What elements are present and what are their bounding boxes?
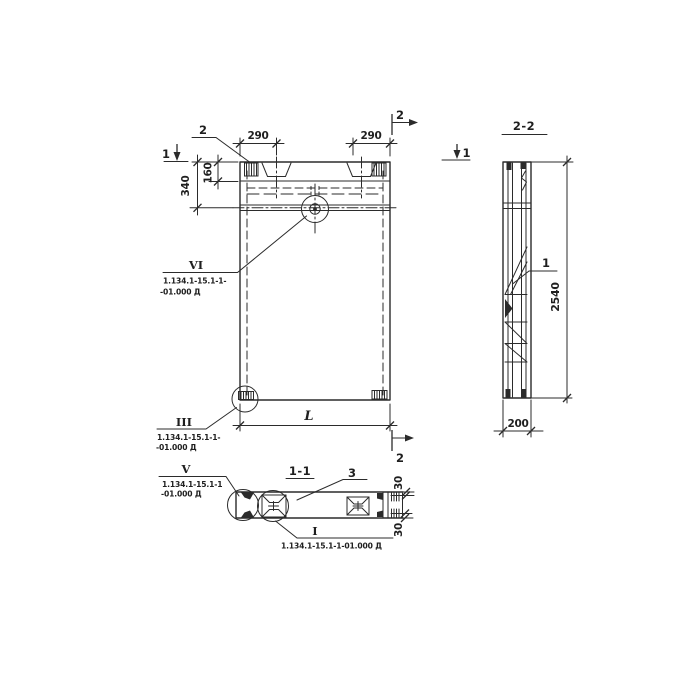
dim-30-top: 30 (391, 476, 414, 500)
dim-290-left: 290 (233, 130, 284, 156)
embed-plate-bottom-right (372, 391, 387, 400)
keyway-pocket-2 (347, 497, 369, 515)
callout-i: I 1.134.1-15.1-1-01.000 Д (276, 521, 394, 551)
embed-plate-top-right (372, 163, 386, 176)
section-mark-1-left-label: 1 (162, 147, 170, 161)
dim-2540: 2540 (549, 156, 571, 403)
dim-290-right: 290 (346, 130, 397, 156)
section-mark-2-top-label: 2 (396, 108, 404, 122)
lifting-slot-left (262, 157, 291, 198)
section-mark-1-left: 1 (162, 144, 188, 162)
callout-vi-label: VI (188, 258, 203, 272)
section-mark-2-bottom-label: 2 (396, 451, 404, 465)
drawing-sheet: 290 290 340 160 L (0, 0, 700, 700)
keyway-pocket-1 (262, 495, 286, 517)
technical-drawing-canvas: 290 290 340 160 L (0, 0, 700, 700)
callout-vi: VI 1.134.1-15.1-1- -01.000 Д (160, 216, 307, 297)
callout-i-label: I (312, 524, 317, 538)
callout-vi-line2: -01.000 Д (160, 288, 201, 297)
part-3-label: 3 (348, 466, 356, 480)
callout-v: V 1.134.1-15.1-1 -01.000 Д (159, 462, 239, 499)
dim-30-bottom: 30 (391, 510, 413, 538)
dim-30-top-label: 30 (393, 476, 405, 490)
embed-plate-top-left (245, 163, 259, 176)
dim-L-label: L (303, 409, 313, 424)
callout-vi-line1: 1.134.1-15.1-1- (163, 277, 226, 286)
callout-v-line1: 1.134.1-15.1-1 (162, 480, 222, 489)
section-1-1-view: 1-1 30 (159, 462, 414, 551)
callout-iii-label: III (176, 415, 192, 429)
main-elevation-view: 290 290 340 160 L (156, 108, 471, 465)
callout-1: 1 (513, 256, 558, 284)
dim-200-label: 200 (507, 418, 528, 430)
callout-2-label: 2 (199, 123, 207, 137)
dim-160: 160 (203, 155, 239, 189)
callout-iii-line1: 1.134.1-15.1-1- (157, 433, 220, 442)
section-2-2-view: 2-2 1 2540 (494, 119, 573, 437)
dim-290-left-label: 290 (247, 130, 268, 142)
section-mark-1-right-label: 1 (462, 146, 470, 160)
detail-circle-vi (302, 184, 329, 233)
callout-iii-line2: -01.000 Д (156, 443, 197, 452)
dim-160-label: 160 (203, 162, 215, 183)
callout-i-line1: 1.134.1-15.1-1-01.000 Д (281, 542, 382, 551)
dim-340-label: 340 (180, 175, 192, 196)
dim-30-bottom-label: 30 (393, 523, 405, 537)
section-mark-2-bottom: 2 (392, 430, 414, 465)
section-1-1-title: 1-1 (289, 464, 311, 478)
section-mark-2-top: 2 (392, 108, 418, 135)
section-2-2-title: 2-2 (513, 119, 535, 133)
callout-v-line2: -01.000 Д (161, 490, 202, 499)
part-1-label: 1 (542, 256, 550, 270)
callout-iii: III 1.134.1-15.1-1- -01.000 Д (156, 408, 237, 453)
dim-200: 200 (494, 400, 543, 437)
dim-2540-label: 2540 (549, 282, 562, 312)
dim-L: L (233, 404, 397, 431)
dim-290-right-label: 290 (360, 130, 381, 142)
embed-plate-bottom-left (239, 392, 254, 400)
callout-v-label: V (181, 462, 192, 476)
section-mark-1-right: 1 (442, 144, 471, 160)
